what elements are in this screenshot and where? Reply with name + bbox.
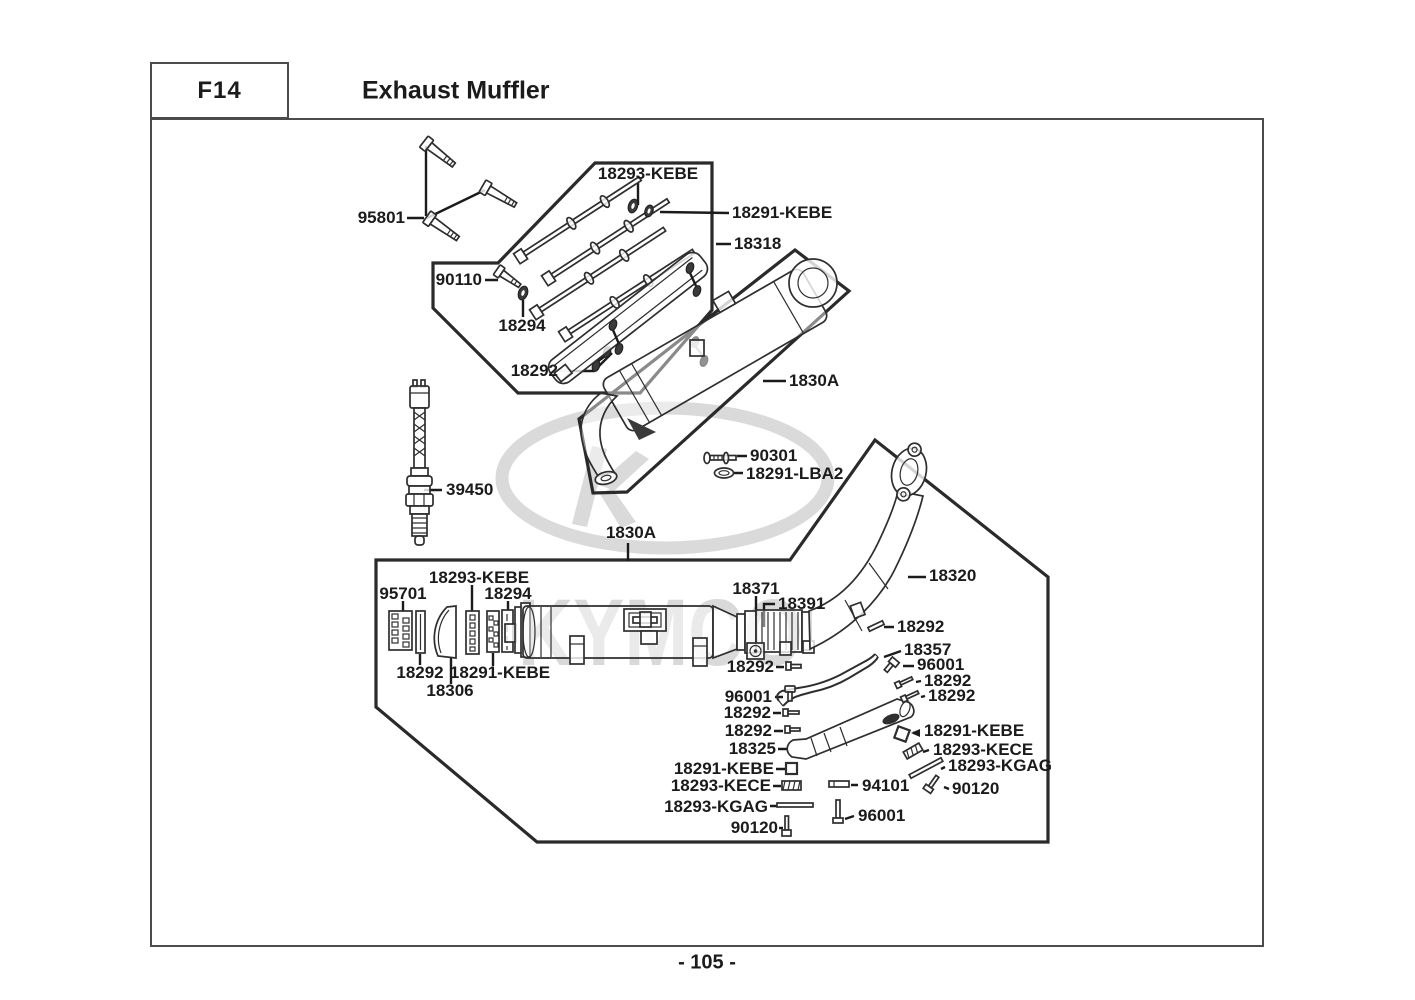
part-label-90120-34: 90120 xyxy=(952,779,999,799)
exploded-diagram: KYMCO xyxy=(0,0,1415,1000)
stud-18292-pipe xyxy=(868,621,884,631)
rod-18293-kgag-right xyxy=(909,758,943,778)
part-label-96001-40: 96001 xyxy=(858,806,905,826)
stud-18292-l2 xyxy=(783,709,799,716)
part-label-39450-10: 39450 xyxy=(446,480,493,500)
plate-18293-kece-right xyxy=(903,743,923,759)
oxygen-sensor-39450 xyxy=(406,380,433,545)
part-label-18325-30: 18325 xyxy=(729,739,776,759)
part-label-18293-kece-36: 18293-KECE xyxy=(671,776,771,796)
part-label-1830a-11: 1830A xyxy=(606,523,656,543)
bolt-90120-left xyxy=(782,816,791,836)
part-label-18292-26: 18292 xyxy=(727,657,774,677)
bolt-96001-right xyxy=(883,657,900,674)
gasket-set-left xyxy=(389,606,513,658)
part-label-18292-28: 18292 xyxy=(724,703,771,723)
plate-18291-kebe xyxy=(487,611,499,652)
part-label-18371-18: 18371 xyxy=(732,579,779,599)
cone-18306 xyxy=(434,606,456,658)
bolt-96001-bottom xyxy=(833,800,843,823)
bolt-90110 xyxy=(493,265,523,291)
gasket-95701 xyxy=(389,611,412,650)
plate-18292 xyxy=(416,611,425,653)
bolt-90120-right xyxy=(923,774,941,794)
clip-18291-kebe-left xyxy=(786,763,797,774)
lower-muffler-1830a xyxy=(505,603,713,666)
part-label-18292-6: 18292 xyxy=(511,361,558,381)
part-label-18391-19: 18391 xyxy=(778,594,825,614)
stud-94101 xyxy=(829,781,849,787)
part-label-1830a-7: 1830A xyxy=(789,371,839,391)
part-label-18292-21: 18292 xyxy=(897,617,944,637)
part-label-18293-kebe-1: 18293-KEBE xyxy=(598,164,698,184)
mounting-bolts-95801 xyxy=(420,136,519,244)
part-label-95701-12: 95701 xyxy=(379,584,426,604)
rod-18293-kgag-left xyxy=(777,803,813,807)
part-label-95801-0: 95801 xyxy=(358,208,405,228)
clip-18291-kebe-right xyxy=(894,726,909,741)
part-label-18294-5: 18294 xyxy=(498,316,545,336)
gasket-18291-lba2 xyxy=(715,468,734,478)
part-label-18293-kgag-37: 18293-KGAG xyxy=(664,797,768,817)
part-label-90120-38: 90120 xyxy=(731,818,778,838)
kymco-emblem-k xyxy=(572,446,649,528)
part-label-18292-25: 18292 xyxy=(928,686,975,706)
part-label-18291-lba2-9: 18291-LBA2 xyxy=(746,464,843,484)
tail-pipe-18325 xyxy=(787,699,914,759)
part-label-18294-14: 18294 xyxy=(484,584,531,604)
part-label-18291-kebe-2: 18291-KEBE xyxy=(732,203,832,223)
part-label-18293-kgag-33: 18293-KGAG xyxy=(948,756,1052,776)
catalog-page: { "header": { "code": "F14", "title": "E… xyxy=(0,0,1415,1000)
page-number: - 105 - xyxy=(678,952,736,975)
plate-18293-kebe xyxy=(466,611,479,654)
part-label-18292-29: 18292 xyxy=(725,721,772,741)
part-label-18318-3: 18318 xyxy=(734,234,781,254)
part-label-18291-kebe-31: 18291-KEBE xyxy=(924,721,1024,741)
part-label-18292-15: 18292 xyxy=(396,663,443,683)
part-label-18320-20: 18320 xyxy=(929,566,976,586)
pipe-flange xyxy=(885,439,932,504)
part-label-90110-4: 90110 xyxy=(436,270,482,290)
screw-90301 xyxy=(704,453,736,464)
plate-18293-kece-left xyxy=(782,781,801,790)
leader-arrowhead xyxy=(911,729,920,737)
part-label-18291-kebe-16: 18291-KEBE xyxy=(450,663,550,683)
part-label-18306-17: 18306 xyxy=(426,681,473,701)
stud-18292-l3 xyxy=(785,726,800,733)
stud-18292-r3 xyxy=(901,689,920,702)
part-label-90301-8: 90301 xyxy=(750,446,797,466)
part-label-94101-39: 94101 xyxy=(862,776,909,796)
stud-18292-r2 xyxy=(895,675,914,688)
